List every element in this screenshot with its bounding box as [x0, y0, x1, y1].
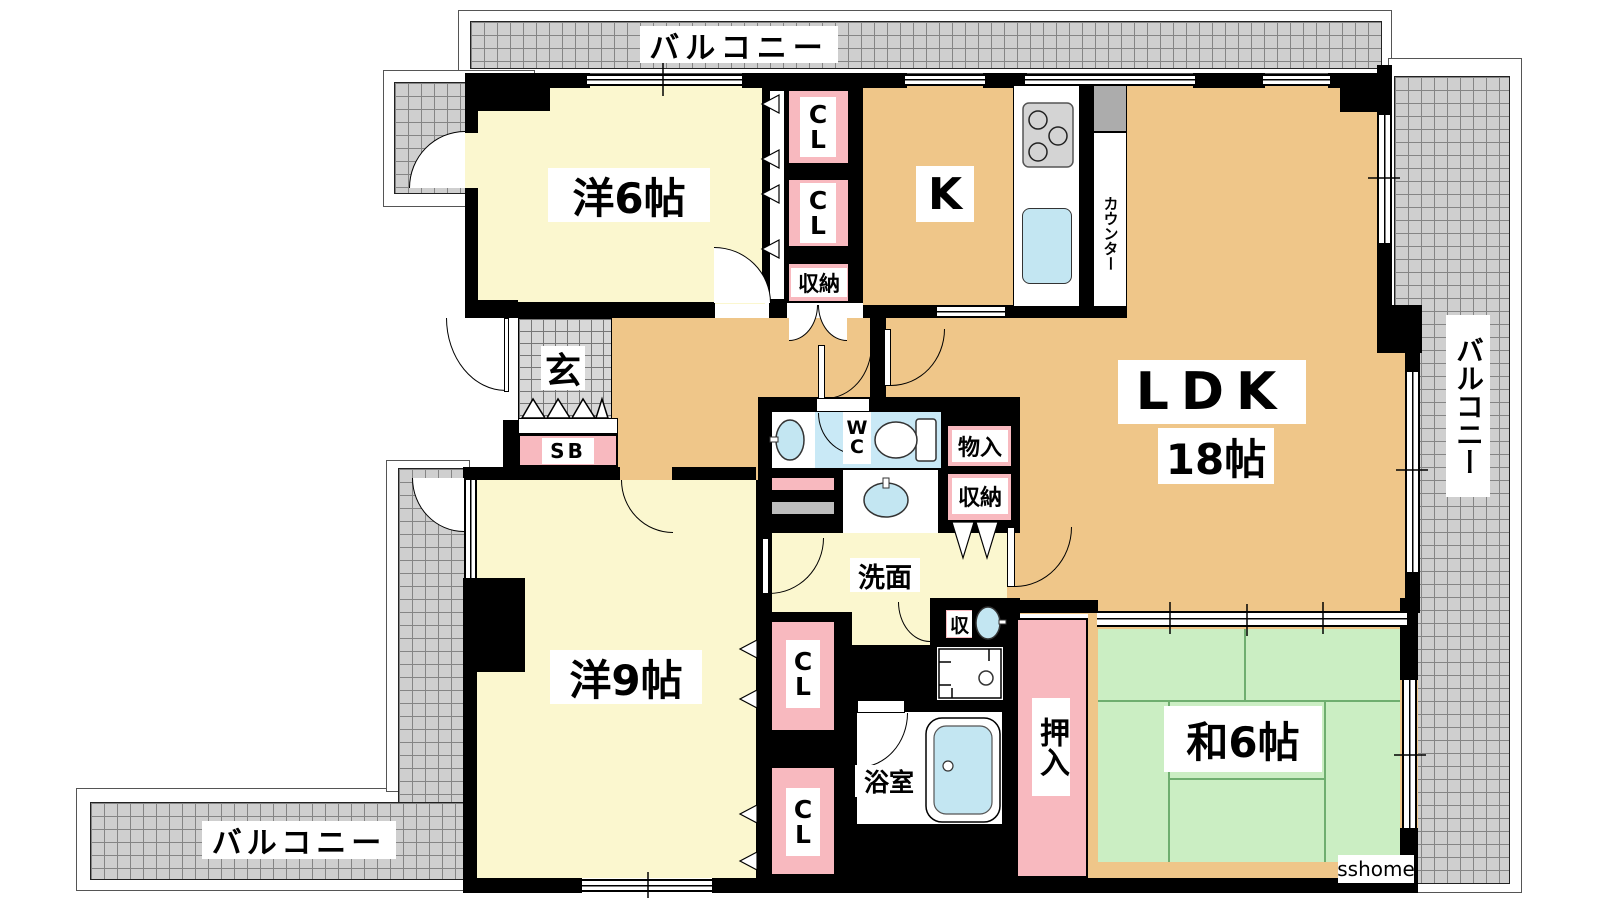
wall — [1377, 65, 1392, 115]
wall — [863, 305, 937, 318]
ldk-door-leaf — [884, 329, 891, 386]
window — [587, 74, 742, 86]
wall — [1080, 85, 1093, 307]
washroom-door-leaf — [762, 538, 769, 594]
entrance-text: 玄 — [545, 342, 581, 394]
label-balcony-right: バルコニー — [1446, 315, 1490, 497]
western6-text: 洋6帖 — [572, 165, 685, 226]
japanese6-text: 和6帖 — [1186, 709, 1299, 770]
wall — [1405, 572, 1420, 613]
window — [1405, 372, 1420, 572]
washroom-vanity — [843, 470, 938, 533]
kitchen-text: K — [928, 169, 962, 220]
shelf-strip-gray — [772, 502, 834, 514]
washing-machine-space — [937, 647, 1003, 700]
label-kitchen: K — [916, 166, 974, 222]
western9-text: 洋9帖 — [569, 647, 682, 708]
wall — [1405, 350, 1420, 372]
wall — [465, 88, 478, 133]
label-western6: 洋6帖 — [548, 168, 710, 222]
tatami-line — [1168, 778, 1324, 780]
label-ldk-size: 18帖 — [1158, 428, 1274, 484]
tatami-line — [1098, 700, 1400, 702]
shelf-strip-pink — [772, 478, 834, 490]
entrance-door-arc — [446, 318, 506, 391]
cl-b-text: CL — [804, 188, 832, 239]
wall — [465, 300, 518, 318]
label-entrance: 玄 — [541, 346, 585, 390]
hall-door-leaf — [818, 345, 825, 399]
label-oshiire: 押入 — [1032, 698, 1070, 796]
label-shuno-wc: 収納 — [952, 478, 1008, 514]
corridor-ldk-door-leaf — [1007, 527, 1015, 587]
kitchen-pass-window — [937, 305, 1005, 318]
watermark-text: sshome — [1337, 857, 1415, 881]
mono-ire-text: 物入 — [958, 430, 1002, 462]
label-japanese6: 和6帖 — [1164, 706, 1322, 772]
window — [582, 879, 712, 892]
room-ldk-upper-floor — [1127, 82, 1377, 322]
label-cl-d: CL — [786, 788, 820, 856]
balcony-top — [470, 21, 1382, 69]
wall — [1018, 600, 1098, 613]
label-cl-c: CL — [786, 640, 820, 708]
label-shu-small: 収 — [947, 611, 972, 637]
entrance-step — [518, 418, 618, 434]
balcony-bottom-text: バルコニー — [212, 818, 386, 862]
wall — [1193, 73, 1265, 88]
toilet-text: WC — [846, 419, 869, 458]
balcony-right-text: バルコニー — [1448, 336, 1488, 476]
label-cl-a: CL — [800, 97, 836, 157]
cl-c-text: CL — [789, 649, 817, 700]
label-balcony-bottom: バルコニー — [202, 821, 396, 859]
label-balcony-top: バルコニー — [640, 26, 838, 63]
refrigerator-space — [1093, 85, 1127, 132]
shoe-box-text: SB — [550, 439, 586, 463]
bathroom-text: 浴室 — [864, 763, 914, 799]
label-western9: 洋9帖 — [550, 650, 702, 704]
ldk-text: LDK — [1136, 362, 1289, 422]
washroom-text: 洗面 — [858, 556, 912, 595]
closet-sliding-track — [769, 90, 785, 300]
window — [1263, 74, 1330, 86]
tatami-line — [1324, 700, 1326, 862]
wall — [1377, 305, 1422, 353]
wall — [463, 878, 582, 893]
label-shuno-hall: 収納 — [791, 268, 847, 297]
window — [1025, 74, 1195, 86]
japanese6-sliding-window — [1097, 611, 1407, 627]
toilet-door-gap — [816, 398, 870, 412]
label-shoe-box: SB — [542, 438, 594, 464]
wall — [463, 672, 477, 878]
entrance-door-leaf — [504, 318, 509, 392]
wall — [503, 420, 518, 478]
kitchen-sink — [1022, 208, 1072, 284]
wall — [672, 467, 756, 480]
wall — [465, 188, 478, 304]
label-cl-b: CL — [800, 183, 836, 243]
label-counter: カウンター — [1097, 168, 1125, 298]
label-washroom: 洗面 — [850, 558, 920, 592]
window — [1377, 115, 1392, 243]
label-bathroom: 浴室 — [855, 765, 923, 797]
watermark-sshome: sshome — [1338, 855, 1414, 883]
balcony-top-text: バルコニー — [649, 23, 828, 67]
wall — [463, 467, 620, 480]
floor-plan: バルコニー バルコニー バルコニー 洋6帖 K カウンター LDK 18帖 和6… — [0, 0, 1600, 900]
tatami-line — [1244, 629, 1246, 700]
label-toilet: WC — [843, 412, 871, 464]
toilet-sink-room — [772, 412, 815, 468]
shuno-wc-text: 収納 — [958, 480, 1002, 512]
cl-a-text: CL — [804, 102, 832, 153]
wall-pillar — [463, 578, 525, 672]
window — [905, 74, 985, 86]
wall — [1377, 243, 1392, 308]
shuno-hall-text: 収納 — [798, 268, 840, 298]
bathroom-door-gap — [857, 700, 905, 713]
label-mono-ire: 物入 — [952, 430, 1008, 462]
oshiire-text: 押入 — [1029, 717, 1073, 777]
counter-text: カウンター — [1101, 196, 1122, 271]
wall — [742, 73, 907, 88]
ldk-size-text: 18帖 — [1166, 426, 1266, 487]
window — [1402, 680, 1417, 828]
cl-d-text: CL — [789, 797, 817, 848]
wall — [769, 302, 787, 318]
label-ldk: LDK — [1118, 360, 1306, 424]
shu-small-text: 収 — [950, 611, 969, 638]
window — [464, 480, 477, 578]
